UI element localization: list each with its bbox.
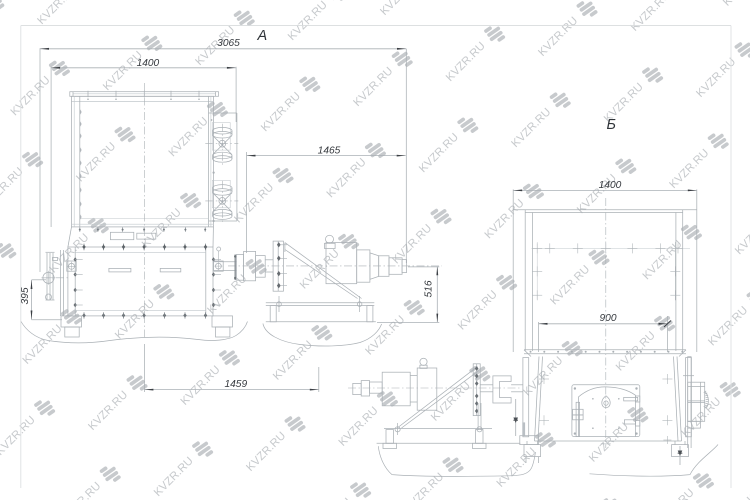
svg-text:3065: 3065 [217,38,240,49]
svg-text:1459: 1459 [224,379,247,390]
svg-text:1400: 1400 [137,58,160,69]
svg-text:1400: 1400 [599,180,622,191]
svg-text:1465: 1465 [318,146,341,157]
svg-text:А: А [256,28,267,44]
svg-text:Б: Б [606,117,615,133]
svg-text:395: 395 [20,287,31,304]
svg-text:516: 516 [423,280,434,297]
svg-text:900: 900 [600,313,617,324]
